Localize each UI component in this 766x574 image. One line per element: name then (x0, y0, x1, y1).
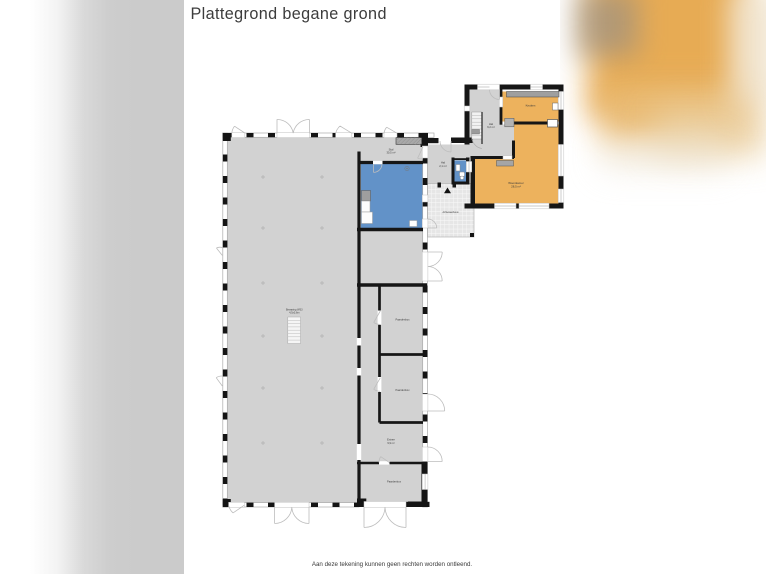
svg-text:Paardenbox: Paardenbox (396, 318, 411, 322)
svg-text:4,5x3,6m: 4,5x3,6m (289, 312, 299, 315)
svg-text:9,9 m²: 9,9 m² (387, 441, 394, 445)
svg-text:28,5 m²: 28,5 m² (511, 185, 521, 189)
svg-text:6,2 m²: 6,2 m² (487, 125, 495, 129)
svg-text:Paardenbox: Paardenbox (396, 388, 411, 392)
svg-text:2,1 m²: 2,1 m² (439, 164, 447, 168)
svg-text:Paardenbox: Paardenbox (387, 480, 402, 484)
svg-text:Hal: Hal (441, 161, 445, 165)
svg-text:Keuken: Keuken (526, 104, 536, 108)
svg-text:Achteraanbouw: Achteraanbouw (443, 211, 459, 214)
svg-text:30,5 m²: 30,5 m² (386, 150, 395, 154)
svg-text:Hal: Hal (489, 122, 493, 126)
